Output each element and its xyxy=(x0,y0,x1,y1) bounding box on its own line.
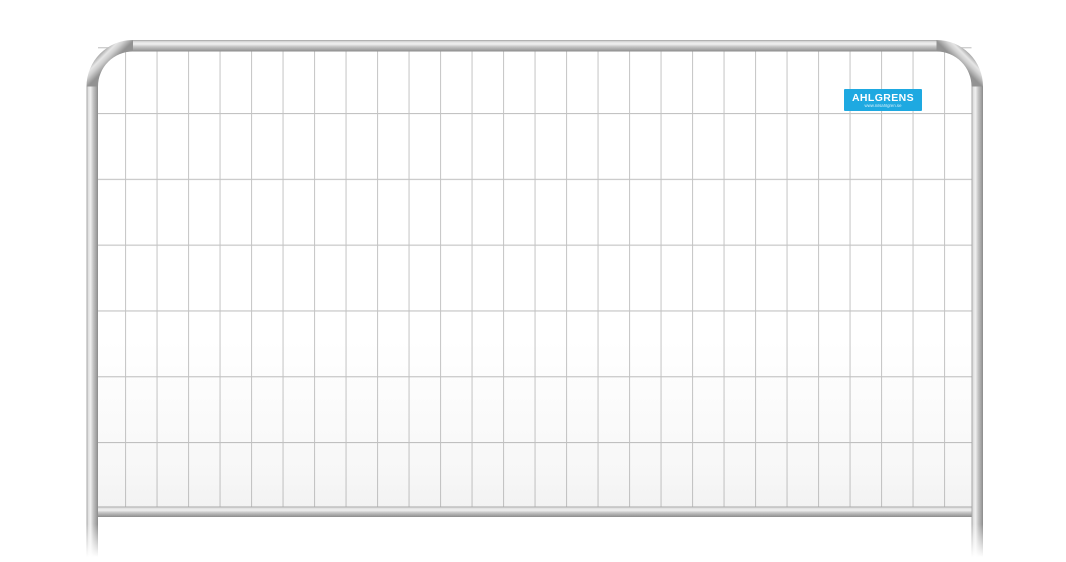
mesh-shading-overlay xyxy=(98,340,972,507)
fence-right-leg xyxy=(972,86,984,557)
brand-label-name: AHLGRENS xyxy=(844,92,922,104)
product-photo: AHLGRENS www.nilsahlgren.se xyxy=(0,0,1066,562)
brand-label-url: www.nilsahlgren.se xyxy=(855,104,911,108)
fence-bottom-rail xyxy=(92,507,977,518)
fence-top-rail xyxy=(133,40,937,52)
brand-label: AHLGRENS www.nilsahlgren.se xyxy=(844,89,922,111)
fence-panel-illustration xyxy=(0,0,1066,562)
fence-left-leg xyxy=(87,86,99,557)
